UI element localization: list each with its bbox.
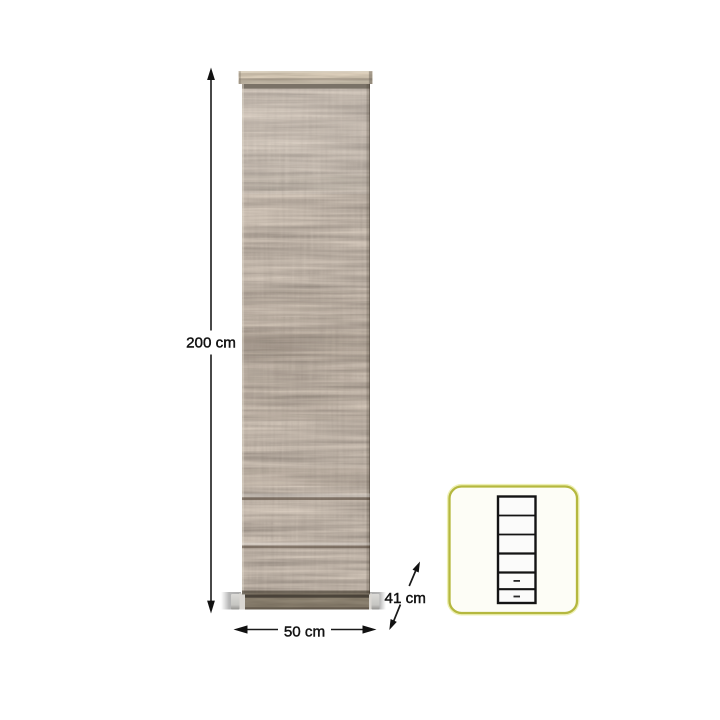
svg-text:50 cm: 50 cm: [284, 624, 325, 641]
svg-text:41 cm: 41 cm: [385, 590, 426, 607]
svg-text:200 cm: 200 cm: [186, 335, 236, 352]
